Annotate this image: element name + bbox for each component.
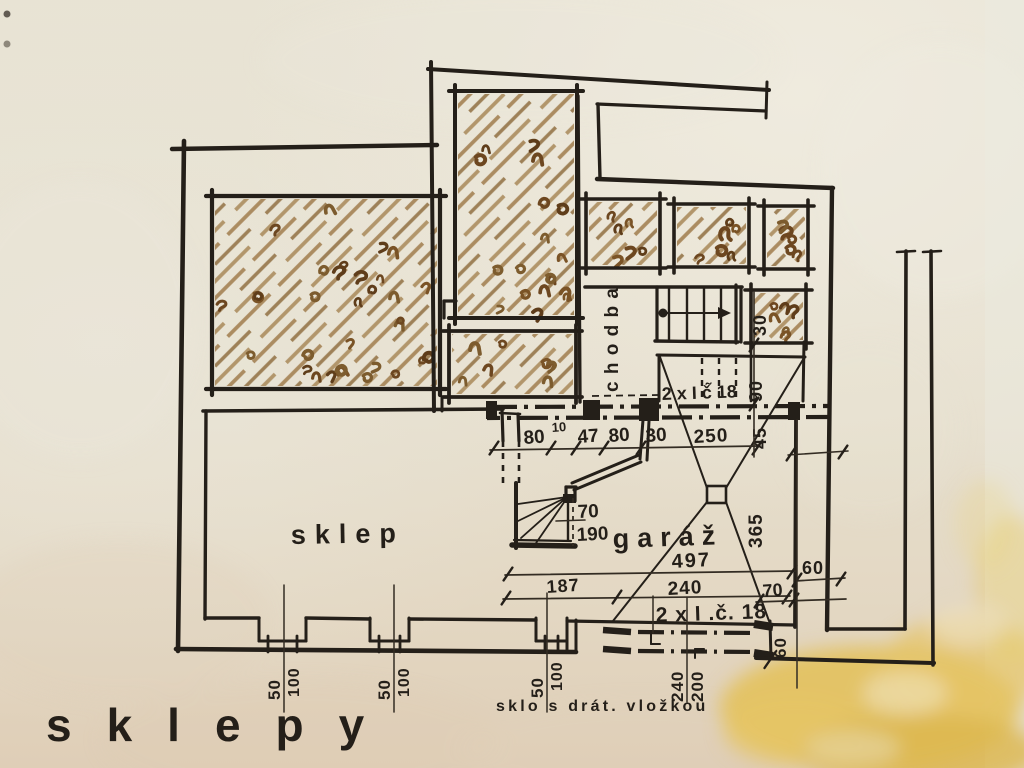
svg-text:c h o d b a: c h o d b a (602, 287, 623, 392)
svg-text:100: 100 (549, 661, 566, 691)
svg-text:80: 80 (608, 425, 631, 447)
svg-text:90: 90 (746, 380, 766, 402)
svg-text:sklepy: sklepy (46, 699, 399, 751)
svg-text:497: 497 (671, 549, 711, 573)
svg-text:70: 70 (762, 580, 783, 601)
svg-text:10: 10 (551, 419, 566, 435)
svg-text:100: 100 (286, 667, 303, 697)
svg-text:garáž: garáž (612, 520, 724, 554)
svg-text:30: 30 (750, 314, 770, 336)
svg-text:60: 60 (802, 558, 824, 578)
svg-text:187: 187 (546, 575, 580, 597)
svg-text:60: 60 (771, 637, 790, 658)
svg-text:100: 100 (396, 667, 413, 697)
svg-text:sklo s drát. vložkou: sklo s drát. vložkou (496, 698, 708, 715)
svg-text:365: 365 (746, 513, 767, 548)
svg-text:70: 70 (577, 501, 599, 523)
svg-text:30: 30 (645, 425, 668, 447)
svg-text:47: 47 (577, 426, 600, 448)
svg-text:45: 45 (750, 427, 770, 449)
svg-text:250: 250 (693, 425, 729, 448)
svg-text:190: 190 (576, 523, 609, 546)
svg-text:50: 50 (375, 679, 394, 700)
svg-text:80: 80 (523, 427, 546, 449)
svg-text:50: 50 (265, 679, 284, 700)
svg-text:2 x I č̃ 18: 2 x I č̃ 18 (661, 380, 737, 404)
svg-text:sklep: sklep (291, 518, 406, 550)
svg-text:2 x I .č. 18: 2 x I .č. 18 (655, 600, 767, 627)
svg-text:50: 50 (528, 677, 547, 698)
svg-text:240: 240 (667, 577, 703, 600)
